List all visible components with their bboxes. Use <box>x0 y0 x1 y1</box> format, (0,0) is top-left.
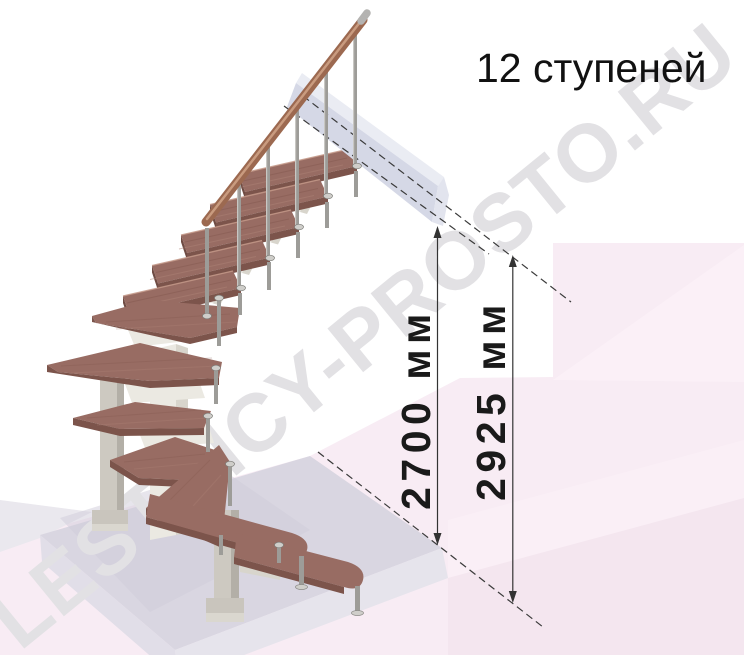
svg-text:12 ступеней: 12 ступеней <box>476 45 707 91</box>
svg-text:2925 мм: 2925 мм <box>468 299 514 501</box>
svg-text:2700 мм: 2700 мм <box>393 308 439 510</box>
